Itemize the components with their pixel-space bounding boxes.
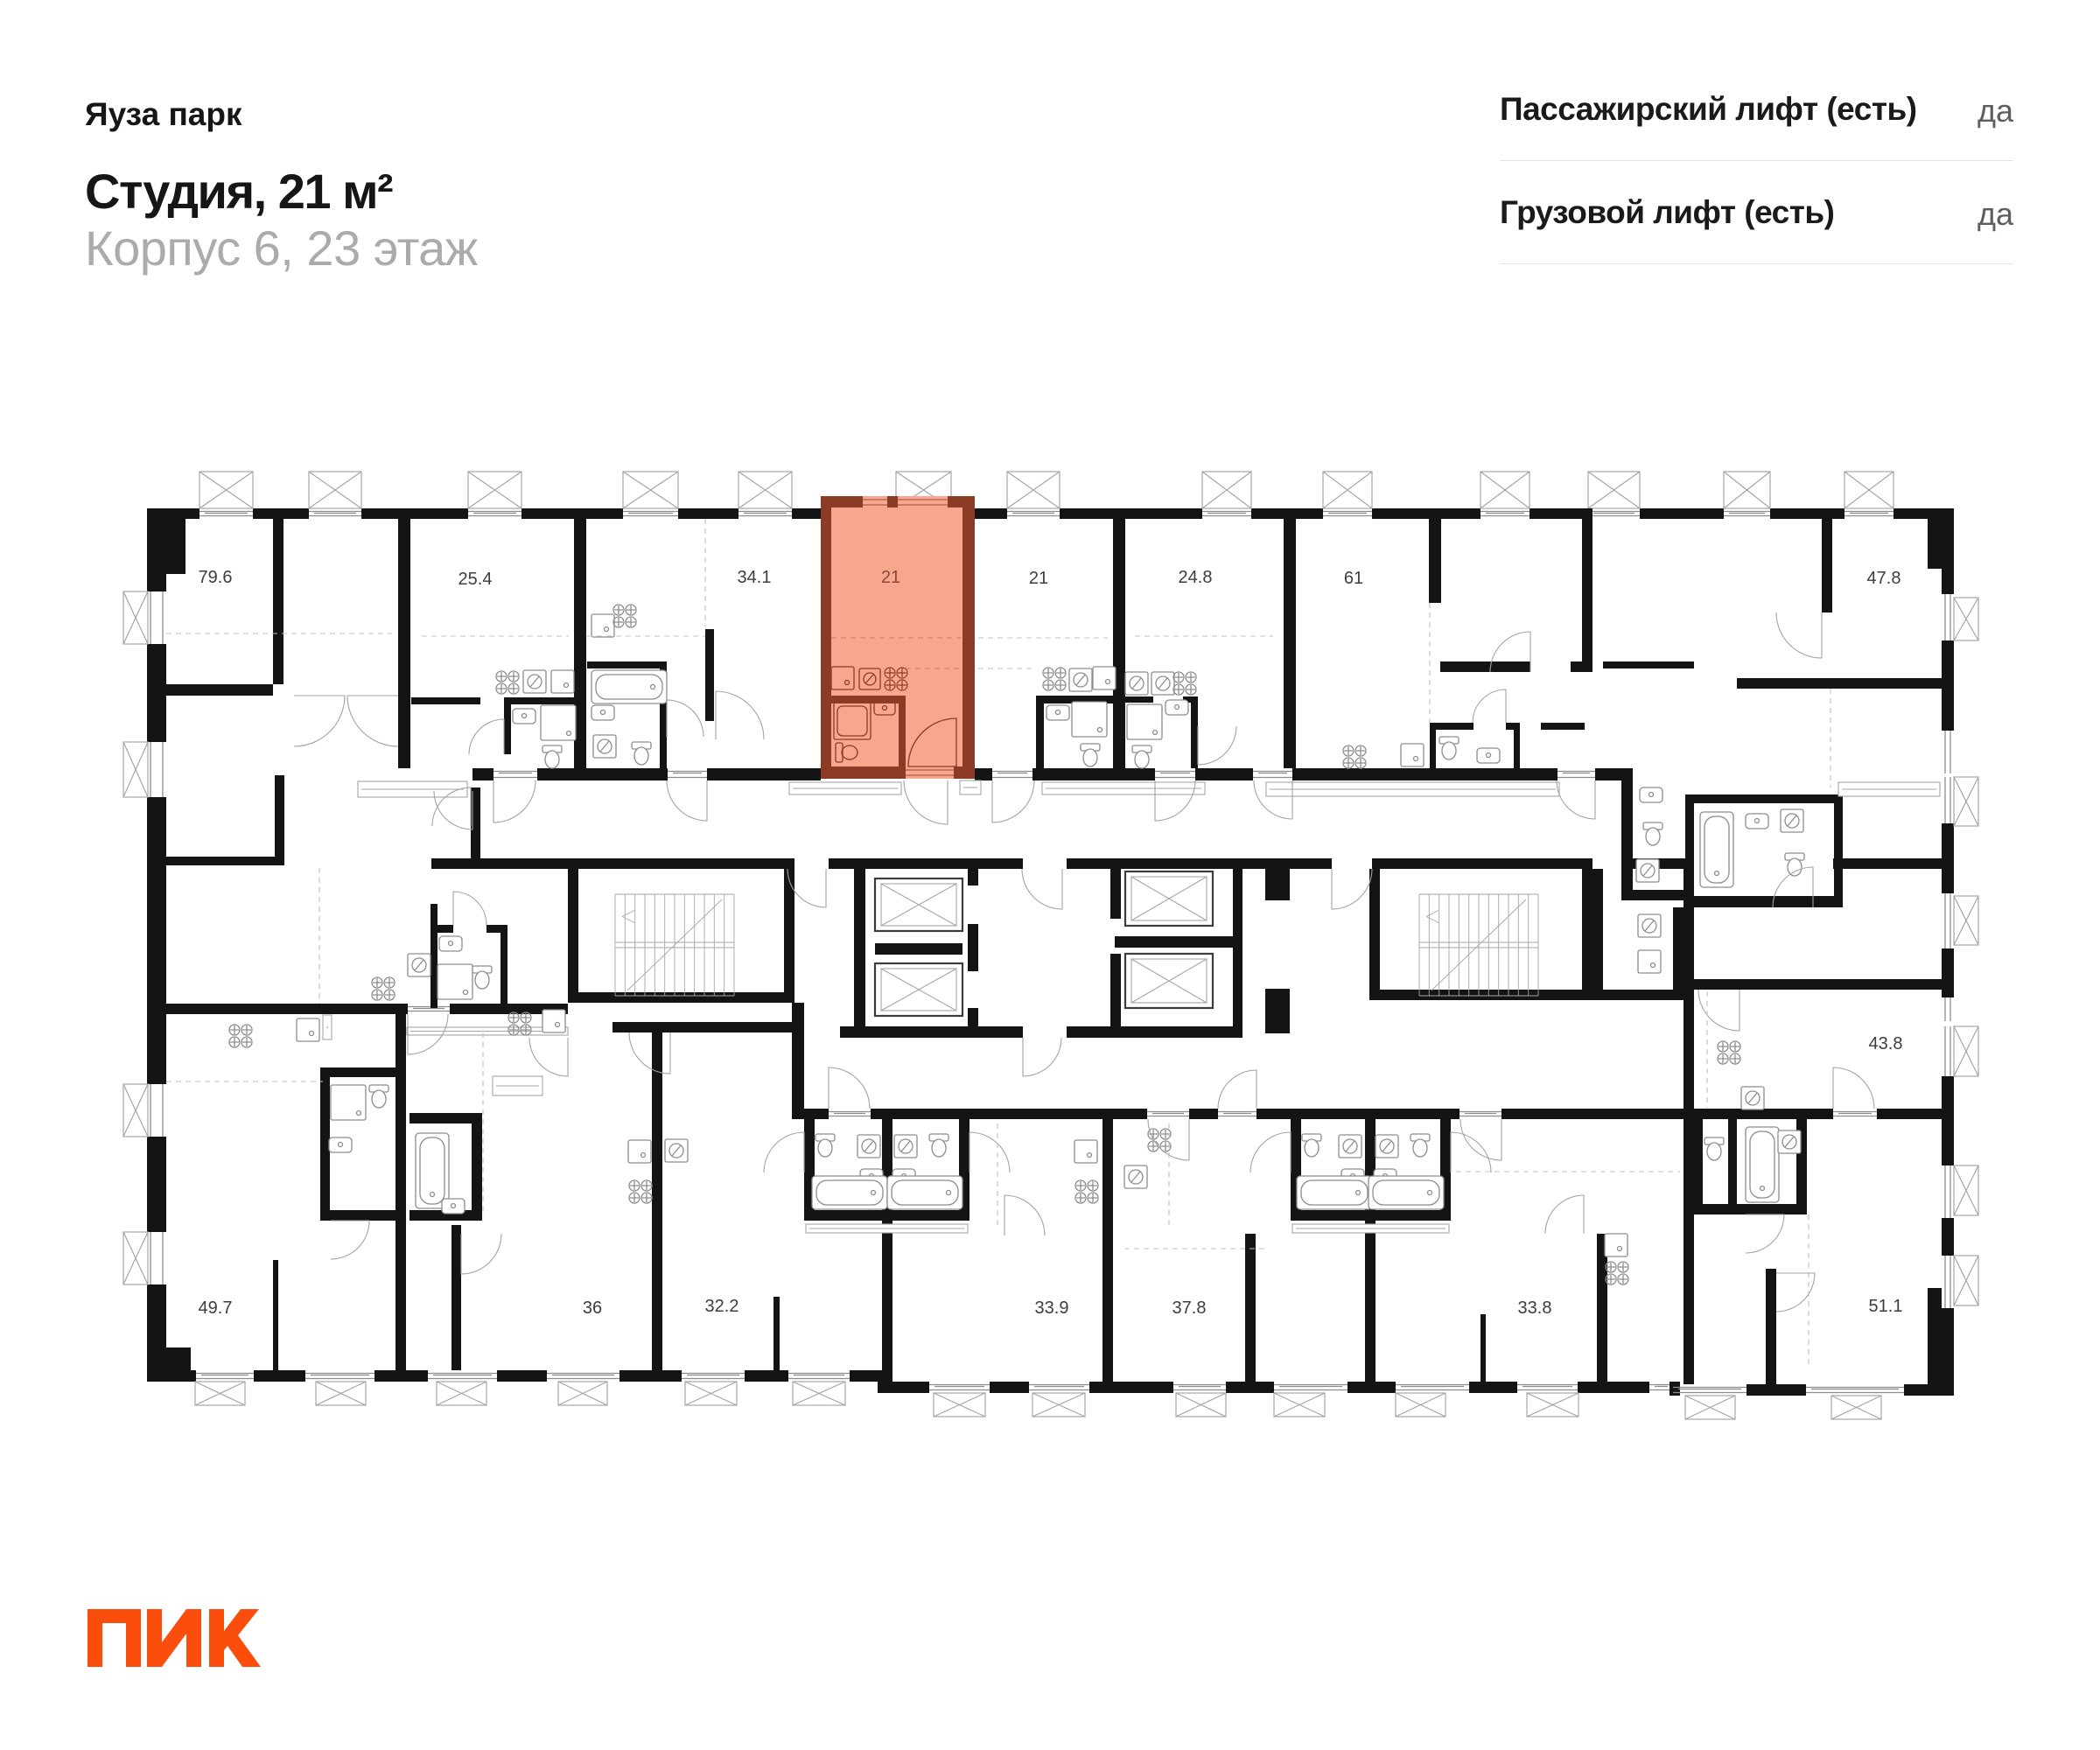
svg-text:24.8: 24.8: [1179, 568, 1213, 587]
svg-text:47.8: 47.8: [1867, 569, 1901, 588]
svg-text:61: 61: [1344, 569, 1363, 588]
svg-text:34.1: 34.1: [738, 568, 772, 587]
svg-text:51.1: 51.1: [1869, 1297, 1903, 1316]
svg-text:21: 21: [881, 568, 900, 587]
svg-text:32.2: 32.2: [705, 1297, 739, 1316]
svg-text:79.6: 79.6: [199, 568, 233, 587]
svg-text:43.8: 43.8: [1869, 1034, 1903, 1053]
svg-text:36: 36: [583, 1298, 602, 1318]
svg-text:21: 21: [1029, 569, 1048, 588]
svg-text:49.7: 49.7: [199, 1298, 233, 1318]
svg-text:37.8: 37.8: [1172, 1298, 1207, 1318]
svg-text:25.4: 25.4: [458, 570, 493, 589]
svg-text:33.9: 33.9: [1035, 1298, 1069, 1318]
svg-text:33.8: 33.8: [1518, 1298, 1552, 1318]
